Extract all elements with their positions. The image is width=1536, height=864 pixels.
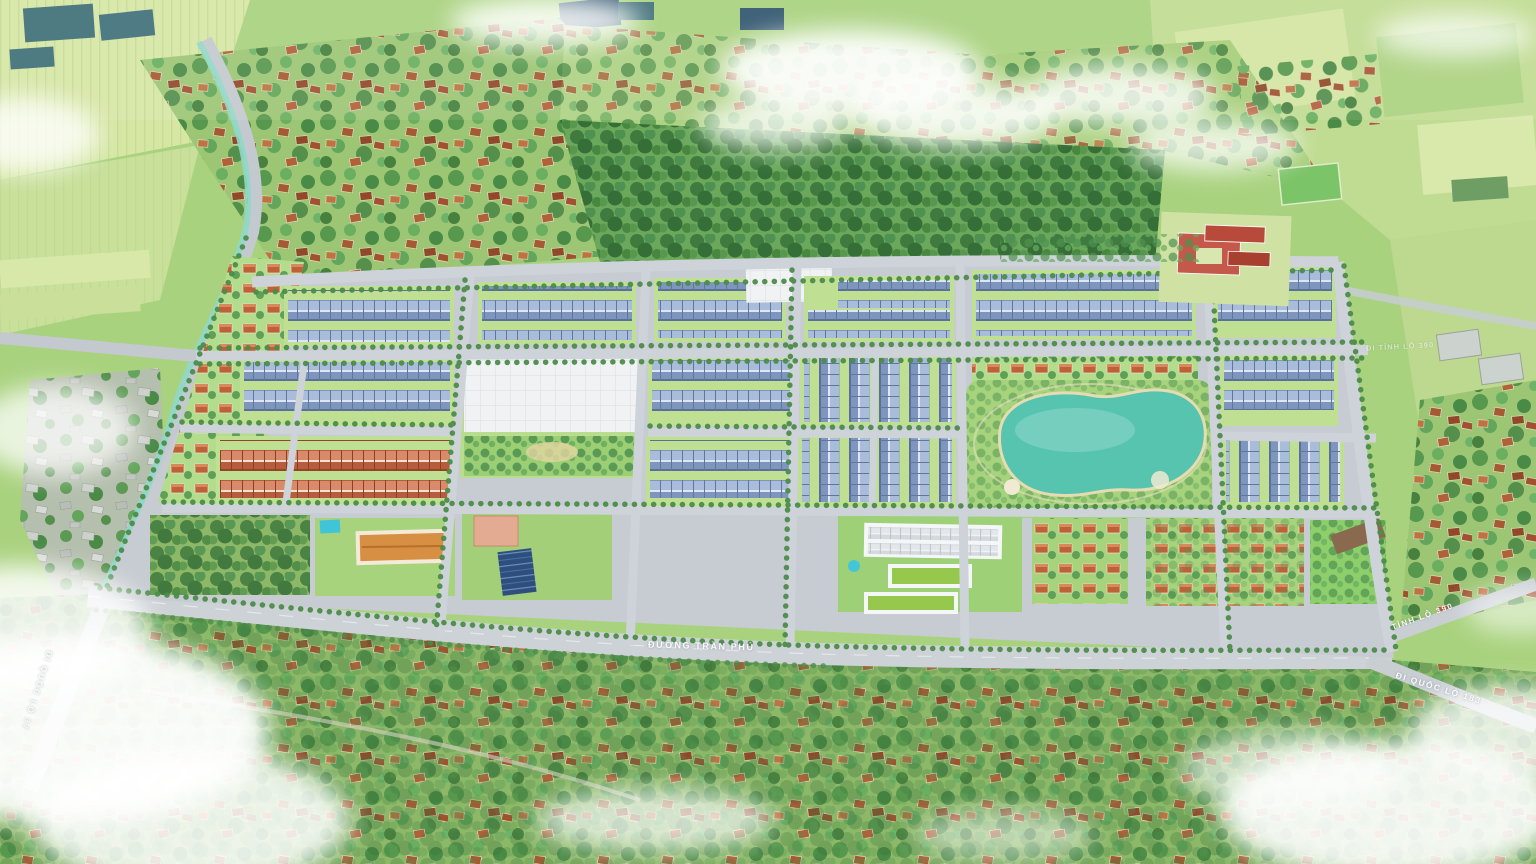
sports-court xyxy=(1436,329,1481,361)
road-h1 xyxy=(196,350,1368,356)
green-roof xyxy=(892,568,968,584)
old-grove-trees xyxy=(150,515,310,595)
cloud xyxy=(1180,730,1400,810)
field-patch-ne xyxy=(1451,176,1508,202)
rowhouse-roofs xyxy=(1224,352,1334,410)
central-plaza xyxy=(464,358,638,432)
road-h2 xyxy=(180,428,455,432)
rowhouse-roofs xyxy=(808,310,950,338)
green-roof xyxy=(868,596,954,610)
rowhouse-roofs-red xyxy=(220,440,450,498)
road-v3b xyxy=(872,352,875,515)
rowhouse-roofs xyxy=(244,362,450,420)
cloud xyxy=(1025,65,1215,125)
villa-roofs xyxy=(1032,518,1128,604)
cloud xyxy=(535,788,775,852)
road-h2 xyxy=(1214,436,1376,438)
lake-plaza-dot xyxy=(1004,479,1020,495)
cloud xyxy=(915,809,1095,861)
cloud xyxy=(1130,119,1300,171)
pink-building xyxy=(474,516,518,546)
rowhouse-roofs xyxy=(650,440,792,498)
sports-pitch xyxy=(1278,163,1341,205)
civic-roof-ridge xyxy=(362,546,442,547)
cloud xyxy=(700,101,850,149)
cloud xyxy=(1375,13,1535,57)
lake-plaza-dot xyxy=(1151,471,1169,489)
rowhouse-roofs xyxy=(288,290,450,342)
park-path xyxy=(526,442,578,462)
campus-pool xyxy=(848,560,860,572)
road-v4 xyxy=(960,263,965,652)
road-h3 xyxy=(162,508,1380,514)
campus-roof xyxy=(868,526,998,556)
lake-highlight xyxy=(1015,408,1135,452)
aerial-masterplan-render: ĐƯỜNG TRẦN PHÚ ĐI QUỐC LỘ 183 TỈNH LỘ 39… xyxy=(0,0,1536,864)
solar-roof-building xyxy=(497,548,536,596)
school-building-wing xyxy=(1205,225,1266,243)
swimming-pool xyxy=(320,519,341,533)
rowhouse-roofs xyxy=(482,286,632,340)
rowhouse-roofs-vertical xyxy=(802,438,952,502)
school-building-wing xyxy=(1228,251,1270,266)
sports-court xyxy=(1478,353,1523,385)
cloud xyxy=(450,0,640,46)
rowhouse-roofs xyxy=(838,280,950,308)
north-edge-trees xyxy=(1000,234,1200,262)
rowhouse-roofs-vertical xyxy=(1226,438,1340,502)
rowhouse-roofs xyxy=(652,358,790,418)
render-canvas xyxy=(0,0,1536,864)
road-h2 xyxy=(648,432,958,434)
